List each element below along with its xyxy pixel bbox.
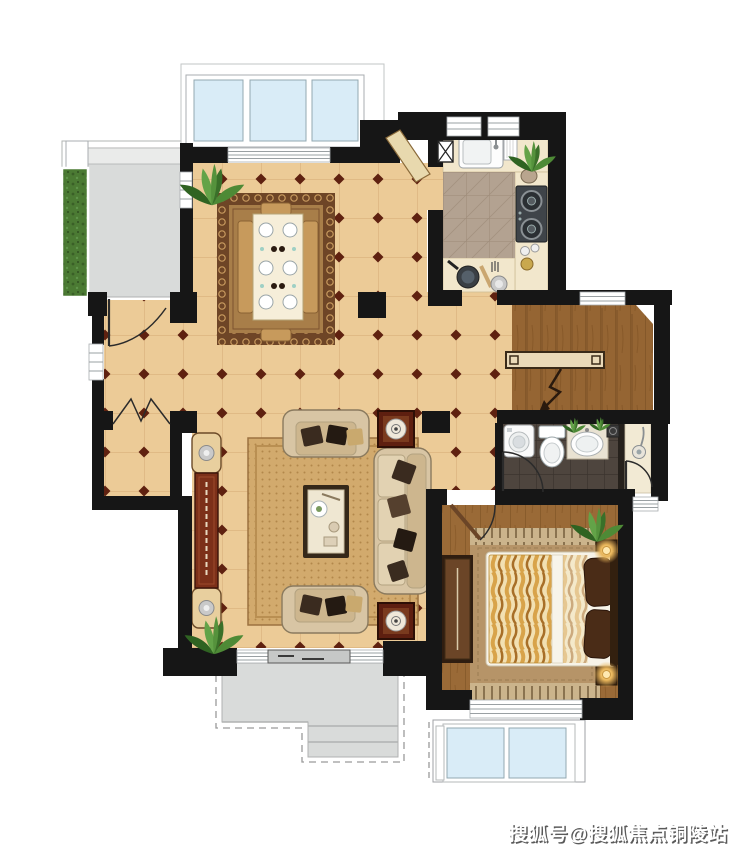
column: [358, 292, 386, 318]
loveseat-north: [283, 410, 369, 457]
floorplan-svg: 搜狐号@搜狐焦点铜陵站 搜狐号@搜狐焦点铜陵站: [0, 0, 740, 851]
window-icon: [447, 728, 504, 778]
dining-bay-window: [181, 64, 384, 147]
flue-icon: [438, 141, 453, 162]
pillow-icon: [583, 609, 614, 659]
pot-icon: [521, 169, 537, 183]
window-icon: [509, 728, 566, 778]
window-icon: [312, 80, 358, 141]
north-balcony: [62, 141, 182, 297]
sofa-icon: [374, 448, 431, 594]
bedroom-bay-window: [429, 720, 585, 782]
pillow-icon: [583, 557, 614, 607]
floor-plan-image: 搜狐号@搜狐焦点铜陵站 搜狐号@搜狐焦点铜陵站: [0, 0, 740, 851]
coffee-table-icon: [303, 485, 349, 558]
window-icon: [580, 292, 625, 305]
end-table-icon: [378, 603, 414, 639]
window-icon: [194, 80, 243, 141]
dining-chair-icon: [261, 203, 291, 215]
window-icon: [488, 117, 519, 136]
tv-console-icon: [192, 433, 221, 628]
floor-drain-icon: [607, 425, 619, 437]
toilet-icon: [539, 426, 565, 467]
end-table-icon: [378, 411, 414, 447]
watermark-text: 搜狐号@搜狐焦点铜陵站: [508, 822, 728, 845]
sliding-door-icon: [268, 650, 350, 663]
window-icon: [250, 80, 306, 141]
bowl-icon: [521, 247, 530, 256]
dining-chair-icon: [238, 221, 253, 313]
handrail-icon: [506, 352, 604, 368]
dining-chair-icon: [261, 329, 291, 341]
window-icon: [89, 344, 103, 380]
dining-chair-icon: [303, 221, 318, 313]
balcony-column: [66, 141, 88, 168]
planter-icon: [62, 168, 88, 297]
loveseat-south: [282, 586, 368, 633]
window-icon: [447, 117, 481, 136]
dining-set: [217, 193, 335, 345]
headboard: [610, 552, 618, 666]
stove-icon: [516, 186, 547, 242]
watermark: 搜狐号@搜狐焦点铜陵站 搜狐号@搜狐焦点铜陵站: [508, 822, 729, 847]
south-terrace: [216, 663, 404, 762]
